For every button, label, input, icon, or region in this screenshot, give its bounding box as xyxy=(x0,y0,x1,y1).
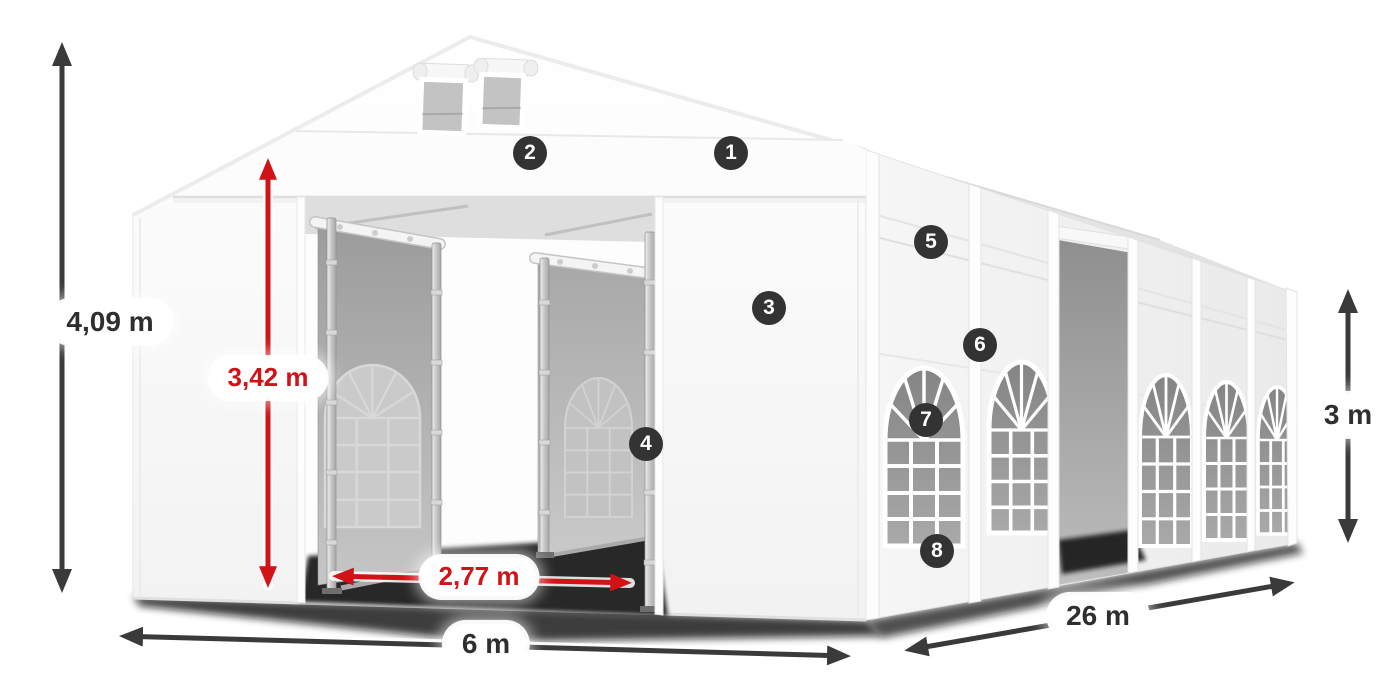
dimension-label-door-width: 2,77 m xyxy=(423,558,536,596)
side-window-3 xyxy=(1140,375,1192,546)
callout-badge-2[interactable]: 2 xyxy=(513,136,547,170)
callout-badge-1[interactable]: 1 xyxy=(714,136,748,170)
dimension-label-inner-height: 3,42 m xyxy=(212,359,325,397)
door-panel-right-window xyxy=(565,378,632,517)
tent-dimension-diagram: 4,09 m 3,42 m 2,77 m 6 m 26 m 3 m 1 2 3 … xyxy=(0,0,1400,700)
tent-front xyxy=(133,37,866,620)
front-door-opening xyxy=(297,197,668,616)
dimension-label-side-height: 3 m xyxy=(1308,395,1388,435)
door-panel-right xyxy=(535,258,655,556)
dimension-label-length: 26 m xyxy=(1050,596,1146,636)
callout-badge-3[interactable]: 3 xyxy=(752,291,786,325)
tent-illustration xyxy=(0,0,1400,700)
door-panel-left-window xyxy=(325,365,420,527)
callout-badge-6[interactable]: 6 xyxy=(963,328,997,362)
dimension-label-width: 6 m xyxy=(446,624,526,664)
callout-badge-4[interactable]: 4 xyxy=(629,427,663,461)
side-window-2 xyxy=(989,362,1054,533)
side-window-4 xyxy=(1204,382,1249,540)
callout-badge-5[interactable]: 5 xyxy=(914,225,948,259)
callout-badge-7[interactable]: 7 xyxy=(909,403,943,437)
callout-badge-8[interactable]: 8 xyxy=(920,534,954,568)
dimension-label-total-height: 4,09 m xyxy=(50,302,169,342)
side-window-1 xyxy=(885,368,963,546)
